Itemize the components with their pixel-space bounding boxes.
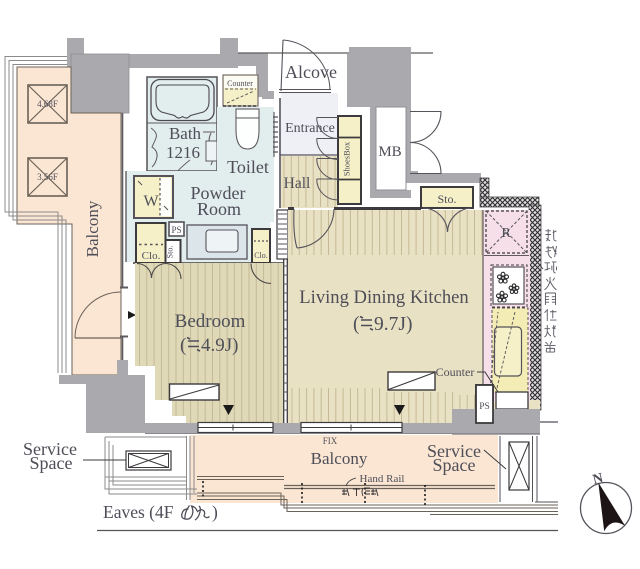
svg-text:Counter: Counter (227, 79, 253, 88)
svg-text:Clo.: Clo. (254, 251, 268, 260)
svg-text:3.56F: 3.56F (37, 172, 58, 182)
svg-text:Space: Space (30, 453, 73, 473)
svg-text:4.68F: 4.68F (37, 99, 58, 109)
svg-text:Sto.: Sto. (166, 246, 175, 259)
svg-text:1216: 1216 (166, 143, 200, 162)
svg-text:Eaves (4F: Eaves (4F (103, 502, 174, 522)
svg-text:Balcony: Balcony (83, 200, 102, 257)
svg-text:): ) (212, 502, 218, 522)
svg-text:(: ( (353, 314, 360, 335)
svg-text:Bath: Bath (169, 124, 202, 143)
svg-text:Clo.: Clo. (142, 250, 161, 262)
svg-text:Hand Rail: Hand Rail (360, 473, 405, 485)
svg-text:PS: PS (479, 402, 490, 412)
svg-text:(: ( (180, 335, 186, 356)
svg-text:R: R (501, 226, 511, 241)
svg-text:Entrance: Entrance (285, 121, 335, 136)
svg-text:Living Dining Kitchen: Living Dining Kitchen (299, 287, 469, 308)
svg-text:Space: Space (433, 455, 476, 475)
svg-text:ShoesBox: ShoesBox (342, 141, 352, 176)
svg-text:Toilet: Toilet (227, 157, 269, 177)
svg-text:FIX: FIX (323, 436, 338, 446)
svg-text:PS: PS (171, 225, 181, 235)
svg-text:W: W (143, 193, 159, 210)
svg-text:4.9J): 4.9J) (201, 335, 238, 356)
svg-text:Hall: Hall (284, 175, 311, 192)
svg-text:Bedroom: Bedroom (175, 311, 246, 332)
svg-text:Room: Room (197, 199, 241, 219)
svg-text:Sto.: Sto. (437, 192, 456, 206)
svg-text:Balcony: Balcony (311, 449, 368, 468)
svg-text:Counter: Counter (436, 365, 475, 379)
svg-text:9.7J): 9.7J) (374, 314, 412, 335)
svg-text:MB: MB (378, 144, 401, 160)
